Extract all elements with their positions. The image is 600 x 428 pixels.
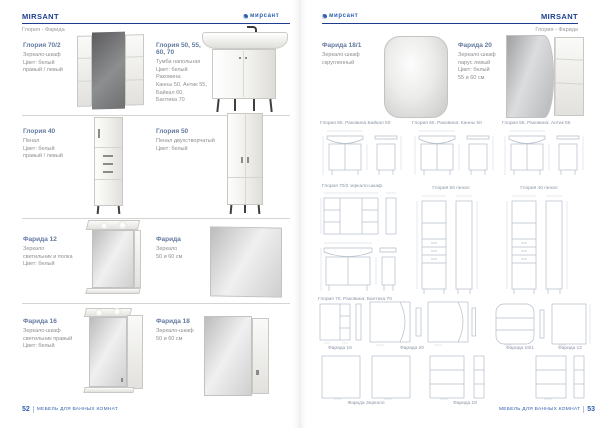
tech-caption: Фарида 20 bbox=[382, 346, 442, 351]
left-page-title: MIRSANT bbox=[22, 12, 59, 21]
tech-drawing-gloria-40-penal bbox=[504, 193, 570, 295]
tech-drawing-farida-18-1 bbox=[494, 302, 546, 346]
right-page-footer: МЕБЕЛЬ ДЛЯ ВАННЫХ КОМНАТ 53 bbox=[499, 406, 595, 413]
series-subtitle: Глория - Фарида bbox=[22, 27, 65, 33]
product-photo-farida-18 bbox=[204, 314, 272, 398]
product-title: Фарида 12 bbox=[23, 236, 81, 243]
product-description: Пенал двухстворчатый Цвет: белый bbox=[156, 138, 226, 153]
product-description: Зеркало 50 и 60 см bbox=[156, 246, 206, 261]
tech-drawing-gloria-55 bbox=[502, 127, 588, 181]
page-number: 52 bbox=[22, 406, 30, 413]
tech-caption: Глория 50. Раковина: Канны 50 bbox=[412, 121, 502, 127]
product-card-gloria-70-2: Глория 70/2 Зеркало-шкаф Цвет: белый пра… bbox=[23, 42, 75, 75]
tech-drawing-farida-18 bbox=[428, 354, 488, 400]
tech-caption: Фарида 12 bbox=[546, 346, 594, 351]
product-card-farida-20: Фарида 20 Зеркало-шкаф парус левый Цвет:… bbox=[458, 42, 506, 83]
tech-drawing-gloria-60 bbox=[320, 127, 406, 181]
page-gutter-shadow bbox=[293, 0, 307, 428]
tech-caption: Глория 60. Раковина Байкал 60 bbox=[320, 121, 408, 127]
product-card-farida-18-1: Фарида 18/1 Зеркало-шкаф скругленный bbox=[322, 42, 380, 67]
product-card-farida-12: Фарида 12 Зеркало светильник и полка Цве… bbox=[23, 236, 81, 269]
tech-caption: Глория 40 пенал bbox=[506, 186, 572, 192]
product-photo-farida-16 bbox=[81, 306, 148, 399]
right-page-title: MIRSANT bbox=[538, 12, 578, 21]
row-divider bbox=[22, 218, 290, 219]
footer-label: МЕБЕЛЬ ДЛЯ ВАННЫХ КОМНАТ bbox=[499, 407, 580, 412]
left-page-footer: 52 МЕБЕЛЬ ДЛЯ ВАННЫХ КОМНАТ bbox=[22, 406, 118, 413]
tech-drawing-gloria-50 bbox=[412, 127, 498, 181]
product-description: Зеркало-шкаф 50 и 60 см bbox=[156, 328, 211, 343]
product-photo-gloria-70-2 bbox=[77, 31, 144, 110]
footer-label: МЕБЕЛЬ ДЛЯ ВАННЫХ КОМНАТ bbox=[37, 407, 118, 412]
tech-drawing-farida-18-side bbox=[534, 354, 590, 400]
product-description: Зеркало-шкаф Цвет: белый правый / левый bbox=[23, 52, 75, 75]
product-title: Фарида 20 bbox=[458, 42, 506, 49]
footer-separator bbox=[583, 406, 584, 413]
product-photo-gloria-tumba bbox=[200, 26, 290, 116]
tech-drawing-farida-12 bbox=[550, 302, 592, 346]
product-photo-farida-mirror bbox=[210, 227, 282, 297]
footer-separator bbox=[33, 406, 34, 413]
product-title: Фарида 16 bbox=[23, 318, 81, 325]
product-card-farida-16: Фарида 16 Зеркало-шкаф светильник правый… bbox=[23, 318, 81, 351]
tech-caption: Глория 55. Раковина: Антик 55 bbox=[502, 121, 592, 127]
product-title: Фарида 18/1 bbox=[322, 42, 380, 49]
mirsant-logo-text: мирсант bbox=[250, 13, 279, 19]
tech-drawing-farida-20 bbox=[368, 300, 476, 346]
product-card-farida-18: Фарида 18 Зеркало-шкаф 50 и 60 см bbox=[156, 318, 211, 343]
row-divider bbox=[22, 303, 290, 304]
tech-drawing-farida-mirror bbox=[320, 354, 412, 400]
mirsant-logo: мирсант bbox=[243, 13, 279, 19]
sink-basin bbox=[202, 32, 288, 49]
product-card-gloria-40: Глория 40 Пенал Цвет: белый правый / лев… bbox=[23, 128, 83, 161]
tech-drawing-gloria-70-tumba bbox=[320, 240, 400, 298]
mirsant-logo-icon bbox=[322, 14, 327, 19]
tech-caption: Фарида 18 bbox=[440, 401, 490, 406]
product-title: Фарида 18 bbox=[156, 318, 211, 325]
tech-drawing-gloria-70-2 bbox=[320, 190, 400, 238]
product-card-gloria-50: Глория 50 Пенал двухстворчатый Цвет: бел… bbox=[156, 128, 226, 153]
tech-caption: Глория 70/2 зеркало-шкаф bbox=[322, 184, 412, 190]
tech-drawing-farida-16 bbox=[318, 302, 362, 344]
product-photo-gloria-50 bbox=[227, 113, 263, 214]
product-photo-farida-20 bbox=[506, 35, 586, 118]
product-photo-farida-18-1 bbox=[384, 36, 448, 118]
tech-caption: Фарида 18/1 bbox=[492, 346, 548, 351]
product-card-farida-mirror: Фарида Зеркало 50 и 60 см bbox=[156, 236, 206, 261]
product-description: Пенал Цвет: белый правый / левый bbox=[23, 138, 83, 161]
tech-caption: Глория 50 пенал bbox=[418, 186, 484, 192]
product-title: Фарида bbox=[156, 236, 206, 243]
product-description: Зеркало-шкаф скругленный bbox=[322, 52, 380, 67]
product-description: Зеркало-шкаф светильник правый Цвет: бел… bbox=[23, 328, 81, 351]
product-title: Глория 40 bbox=[23, 128, 83, 135]
mirsant-logo-text: мирсант bbox=[329, 13, 358, 19]
tech-drawing-gloria-50-penal bbox=[414, 193, 480, 295]
cabinet-body bbox=[212, 49, 276, 99]
product-title: Глория 50 bbox=[156, 128, 226, 135]
product-description: Зеркало светильник и полка Цвет: белый bbox=[23, 246, 81, 269]
header-rule bbox=[322, 23, 578, 24]
product-title: Глория 70/2 bbox=[23, 42, 75, 49]
product-photo-farida-12 bbox=[84, 220, 148, 300]
header-rule bbox=[22, 23, 290, 24]
mirsant-logo: мирсант bbox=[322, 13, 358, 19]
page-number: 53 bbox=[587, 406, 595, 413]
tech-caption: Фарида 16 bbox=[316, 346, 364, 351]
series-subtitle: Глория - Фарида bbox=[480, 27, 578, 33]
mirsant-logo-icon bbox=[243, 14, 248, 19]
product-description: Зеркало-шкаф парус левый Цвет: белый 55 … bbox=[458, 52, 506, 83]
catalog-spread: MIRSANT мирсант Глория - Фарида Глория 7… bbox=[0, 0, 600, 428]
product-photo-gloria-40 bbox=[94, 117, 123, 214]
tech-caption: Фарида Зеркало bbox=[320, 401, 412, 406]
